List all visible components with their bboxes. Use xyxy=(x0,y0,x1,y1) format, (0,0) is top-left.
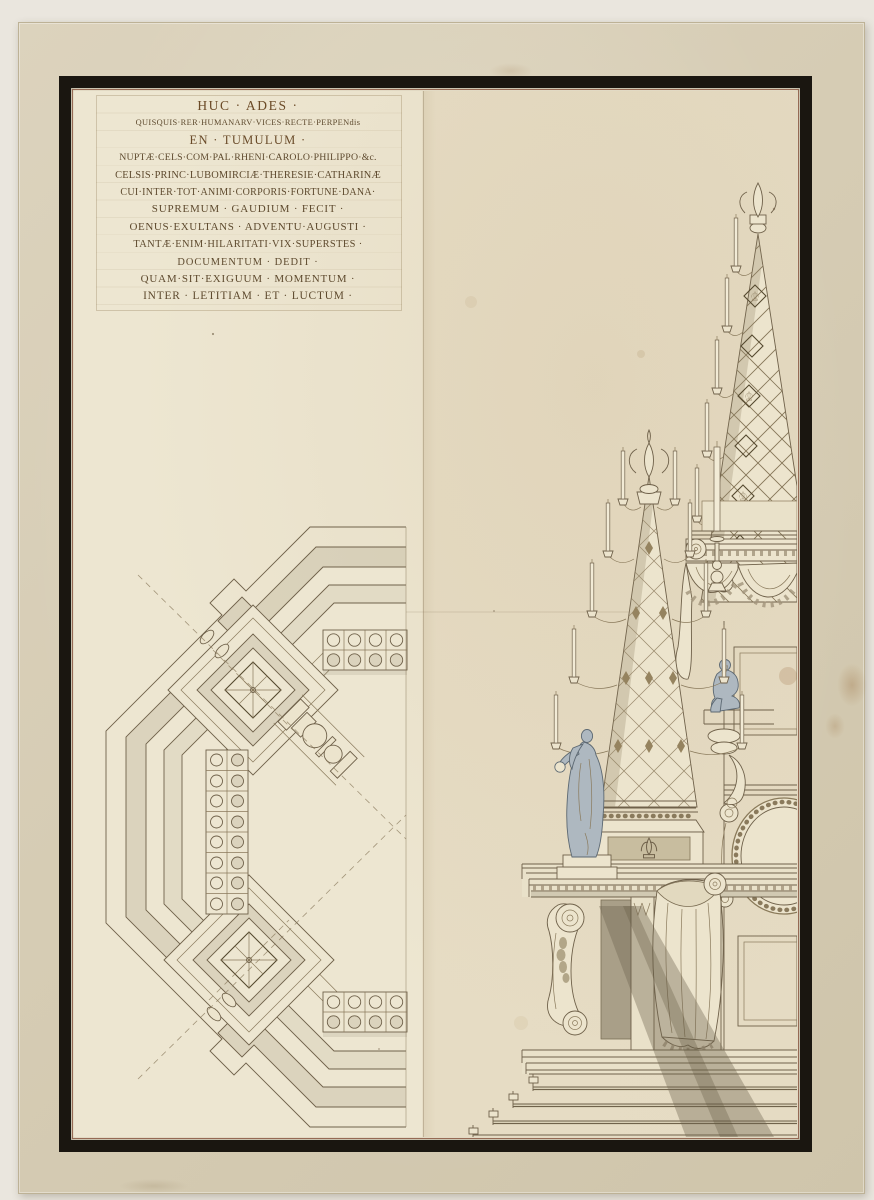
plan-candle-row-strip xyxy=(323,992,407,1037)
inscription-line: INTER · LETITIAM · ET · LUCTUM · xyxy=(96,288,400,305)
obelisk-fleur-de-lis-finial xyxy=(629,430,668,504)
artwork-photo: HUC · ADES · QUISQUIS·RER·HUMANARV·VICES… xyxy=(0,0,874,1200)
drawing-paper: HUC · ADES · QUISQUIS·RER·HUMANARV·VICES… xyxy=(74,91,797,1137)
inscription-line: HUC · ADES · xyxy=(96,97,400,114)
foxing-stain xyxy=(837,663,867,707)
volute-console xyxy=(547,904,587,1035)
inscription-line: NUPTÆ·CELS·COM·PAL·RHENI·CAROLO·PHILIPPO… xyxy=(96,149,400,166)
inscription-line: DOCUMENTUM · DEDIT · xyxy=(96,254,400,271)
seated-putto xyxy=(704,660,774,809)
inscription-panel: HUC · ADES · QUISQUIS·RER·HUMANARV·VICES… xyxy=(96,97,400,306)
paper-seam xyxy=(423,91,424,1137)
foxing-stain xyxy=(825,713,845,739)
plan-candle-row-strip xyxy=(323,630,407,675)
foxing-stain xyxy=(119,1179,189,1193)
pyramid-fleur-de-lis-finial xyxy=(740,183,776,233)
inscription-line: QUISQUIS·RER·HUMANARV·VICES·RECTE·PERPEN… xyxy=(96,114,400,131)
inscription-line: CELSIS·PRINC·LUBOMIRCIÆ·THERESIE·CATHARI… xyxy=(96,167,400,184)
plan-view xyxy=(106,527,407,1127)
ink-border-frame: HUC · ADES · QUISQUIS·RER·HUMANARV·VICES… xyxy=(59,76,812,1152)
skull xyxy=(555,762,565,772)
inscription-line: QUAM·SIT·EXIGUUM · MOMENTUM · xyxy=(96,271,400,288)
inscription-line: EN · TUMULUM · xyxy=(96,132,400,149)
inscription-line: OENUS·EXULTANS · ADVENTU·AUGUSTI · xyxy=(96,219,400,236)
inscription-line: TANTÆ·ENIM·HILARITATI·VIX·SUPERSTES · xyxy=(96,236,400,253)
plan-candle-column-strip xyxy=(206,750,248,914)
wall-panel xyxy=(738,936,797,1026)
inscription-line: SUPREMUM · GAUDIUM · FECIT · xyxy=(96,201,400,218)
inscription-line: CUI·INTER·TOT·ANIMI·CORPORIS·FORTUNE·DAN… xyxy=(96,184,400,201)
drapery-tail xyxy=(676,563,692,679)
